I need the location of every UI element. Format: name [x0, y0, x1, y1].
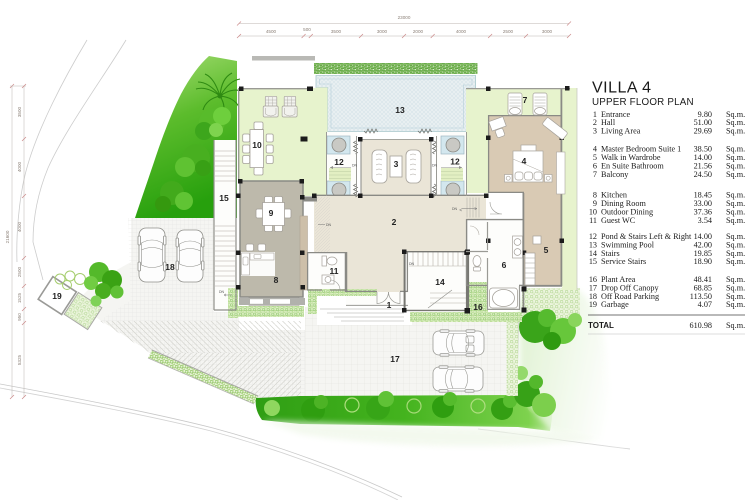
- svg-text:2500: 2500: [503, 29, 514, 34]
- svg-text:6: 6: [502, 260, 507, 270]
- svg-text:950: 950: [17, 313, 22, 321]
- svg-text:DN: DN: [352, 164, 358, 168]
- svg-text:15: 15: [589, 257, 597, 266]
- svg-text:3500: 3500: [17, 106, 22, 117]
- svg-text:17: 17: [390, 354, 400, 364]
- svg-text:Sq.m.: Sq.m.: [726, 300, 745, 309]
- svg-text:2000: 2000: [413, 29, 424, 34]
- svg-text:23000: 23000: [398, 15, 411, 20]
- svg-text:16: 16: [473, 302, 483, 312]
- svg-text:3.54: 3.54: [698, 216, 712, 225]
- svg-text:4000: 4000: [17, 221, 22, 232]
- svg-text:3000: 3000: [542, 29, 553, 34]
- svg-text:Guest WC: Guest WC: [601, 216, 636, 225]
- svg-text:Sq.m.: Sq.m.: [726, 216, 745, 225]
- svg-text:3000: 3000: [377, 29, 388, 34]
- svg-text:5: 5: [544, 245, 549, 255]
- svg-text:10: 10: [252, 140, 262, 150]
- svg-text:4000: 4000: [456, 29, 467, 34]
- svg-text:Sq.m.: Sq.m.: [726, 257, 745, 266]
- svg-text:19: 19: [52, 291, 62, 301]
- svg-text:DN: DN: [326, 223, 332, 227]
- svg-text:1525: 1525: [17, 292, 22, 303]
- svg-text:13: 13: [395, 105, 405, 115]
- svg-text:DN: DN: [409, 262, 415, 266]
- svg-text:Sq.m.: Sq.m.: [726, 170, 745, 179]
- svg-text:11: 11: [589, 216, 597, 225]
- svg-text:TOTAL: TOTAL: [588, 321, 614, 330]
- svg-text:DN: DN: [452, 207, 458, 211]
- svg-text:7: 7: [593, 170, 597, 179]
- svg-text:3500: 3500: [331, 29, 342, 34]
- svg-text:5325: 5325: [17, 354, 22, 365]
- svg-text:18: 18: [165, 262, 175, 272]
- svg-text:24.50: 24.50: [694, 170, 712, 179]
- svg-text:12: 12: [450, 157, 460, 167]
- svg-text:9: 9: [269, 208, 274, 218]
- svg-text:Sq.m.: Sq.m.: [726, 127, 745, 136]
- svg-text:UPPER FLOOR PLAN: UPPER FLOOR PLAN: [592, 97, 694, 108]
- svg-text:29.69: 29.69: [694, 127, 712, 136]
- svg-text:3: 3: [394, 159, 399, 169]
- svg-text:15: 15: [219, 193, 229, 203]
- svg-text:4500: 4500: [266, 29, 277, 34]
- svg-text:7: 7: [523, 95, 528, 105]
- svg-text:8: 8: [274, 275, 279, 285]
- svg-text:500: 500: [303, 27, 311, 32]
- svg-text:4000: 4000: [17, 161, 22, 172]
- svg-text:18.90: 18.90: [694, 257, 712, 266]
- svg-text:Balcony: Balcony: [601, 170, 629, 179]
- svg-text:Living Area: Living Area: [601, 127, 641, 136]
- svg-text:4.07: 4.07: [698, 300, 712, 309]
- svg-text:14: 14: [435, 277, 445, 287]
- svg-text:3: 3: [593, 127, 597, 136]
- svg-text:4: 4: [522, 156, 527, 166]
- svg-text:2: 2: [392, 217, 397, 227]
- svg-text:DN: DN: [432, 164, 438, 168]
- svg-text:21600: 21600: [5, 230, 10, 243]
- svg-text:Sq.m.: Sq.m.: [726, 321, 745, 330]
- svg-text:2500: 2500: [17, 266, 22, 277]
- svg-text:1: 1: [387, 300, 392, 310]
- svg-text:610.98: 610.98: [689, 321, 712, 330]
- svg-text:DN: DN: [219, 290, 225, 294]
- svg-text:11: 11: [330, 266, 339, 276]
- svg-text:12: 12: [334, 157, 344, 167]
- svg-text:19: 19: [589, 300, 597, 309]
- svg-text:VILLA 4: VILLA 4: [592, 80, 652, 97]
- svg-text:Garbage: Garbage: [601, 300, 629, 309]
- svg-text:Service Stairs: Service Stairs: [601, 257, 646, 266]
